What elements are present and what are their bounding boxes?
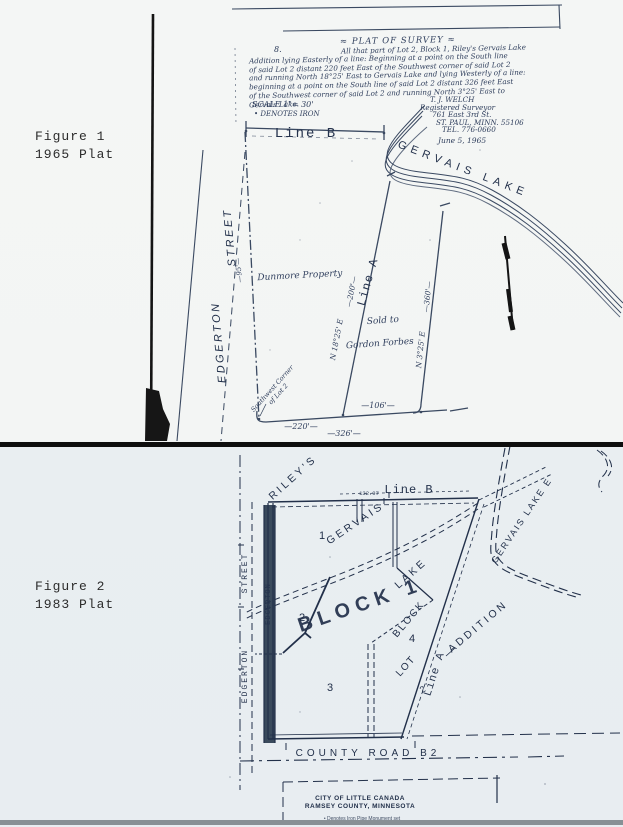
county-road-label: COUNTY ROAD B2	[296, 748, 441, 759]
figure2-line-a-label: Line A	[422, 651, 448, 698]
road-strip-label: EDGERTON	[265, 583, 273, 625]
street-lines	[177, 150, 245, 441]
sold-to-line2: Gordon Forbes	[346, 337, 415, 352]
plat-name-gervais: GERVAIS	[324, 500, 386, 547]
figure1-line-b-label: Line B	[275, 126, 337, 142]
scanner-artifacts	[145, 14, 513, 441]
survey-sheet-border	[232, 5, 562, 126]
lake-shoreline	[385, 106, 623, 317]
lake-shoreline-1983	[491, 447, 612, 597]
plat-name-rileys: RILEY'S	[267, 453, 320, 502]
scan-blob	[145, 388, 170, 441]
figure2-street-word2: STREET	[241, 553, 250, 594]
west-line-dimension: —95'—	[234, 257, 244, 282]
city-name-line2: RAMSEY COUNTY, MINNESOTA	[305, 803, 415, 810]
property-owner-label: Dunmore Property	[256, 269, 343, 284]
gervais-lake-east-label: GERVAIS LAKE E	[489, 476, 554, 565]
figure1-line-a-label: Line A	[355, 257, 382, 308]
city-name-line1: CITY OF LITTLE CANADA	[315, 795, 405, 802]
lot-number-2: 2	[299, 612, 305, 624]
figure1-gervais-lake-label: GERVAIS LAKE	[396, 139, 530, 200]
figure2-plat-drawing: Line B 132.97 RILEY'S GERVAIS LAKE ADDIT…	[0, 447, 623, 820]
plat-name-addition: ADDITION	[446, 598, 511, 655]
lot-label: LOT	[394, 654, 418, 679]
figure2-street-word1: EDGERTON	[241, 649, 250, 703]
figure1-plat-drawing: Line B GERVAIS LAKE STREET EDGERTON —95'…	[0, 0, 623, 443]
base-dimension-total: —326'—	[327, 429, 360, 438]
figure1-street-label-word1: EDGERTON	[209, 301, 228, 384]
line-b-dimension: 132.97	[359, 490, 379, 497]
lot-number-1: 1	[319, 530, 325, 542]
lot-number-4: 4	[409, 633, 415, 645]
line-a-bearing: N 18°25' E	[328, 318, 345, 362]
sold-to-line1: Sold to	[366, 315, 399, 327]
scanned-plat-exhibit-page: Figure 1 1965 Plat Figure 2 1983 Plat 8.…	[0, 0, 623, 827]
figure2-line-b-label: Line B	[384, 483, 433, 497]
scan-bottom-edge-bar	[0, 820, 623, 825]
title-block: CITY OF LITTLE CANADA RAMSEY COUNTY, MIN…	[283, 775, 500, 820]
lot-number-3: 3	[327, 682, 333, 694]
base-dimension-left: —220'—	[284, 422, 317, 431]
base-dimension-right: —106'—	[361, 401, 394, 410]
